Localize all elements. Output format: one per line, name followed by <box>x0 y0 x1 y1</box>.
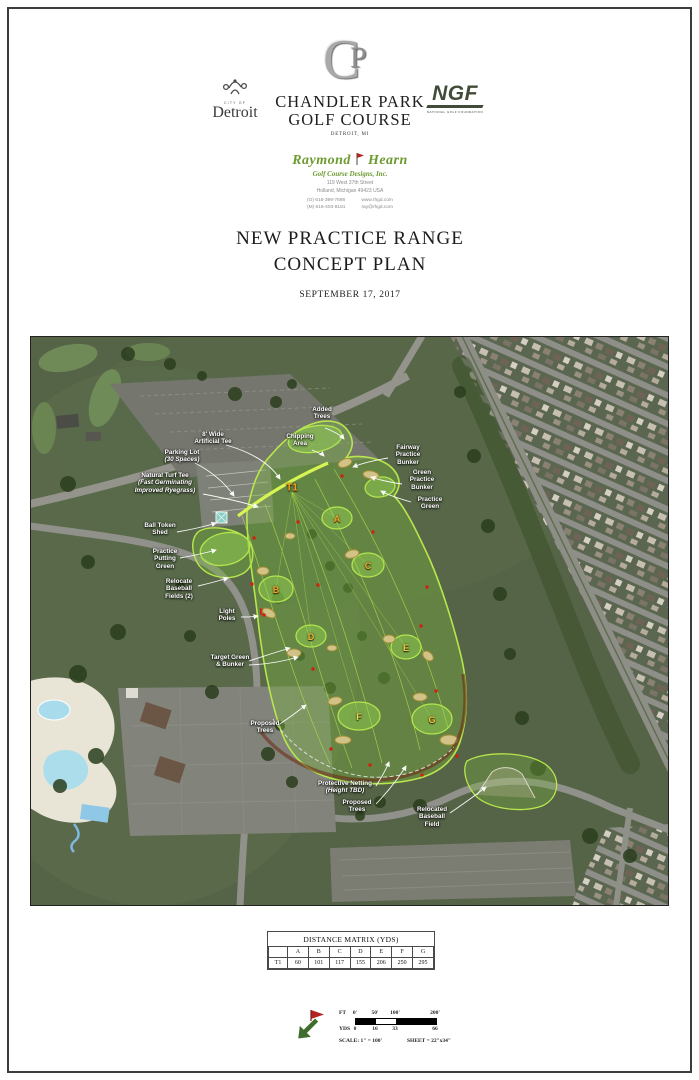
matrix-value-G: 295 <box>413 958 434 969</box>
map-marker-B: B <box>273 585 280 595</box>
map-label-light-poles: LightPoles <box>219 608 236 623</box>
designer-contacts: (O) 616-399-7686 (M) 616-403-8181 www.rh… <box>250 197 450 211</box>
map-label-relocate-baseball-fields: RelocateBaseballFields (2) <box>165 578 193 600</box>
designer-web: www.rhgd.com ray@rhgd.com <box>361 197 393 211</box>
yds-tick-1: 16 <box>372 1026 378 1032</box>
matrix-col-B: B <box>308 947 329 958</box>
map-marker-E: E <box>403 643 409 653</box>
matrix-col-A: A <box>288 947 309 958</box>
plan-title-line2: CONCEPT PLAN <box>150 252 550 278</box>
map-marker-F: F <box>356 712 362 722</box>
map-label-artificial-tee: 8' WideArtificial Tee <box>194 431 231 446</box>
spirit-of-detroit-icon <box>222 78 248 96</box>
map-marker-T1: T1 <box>286 483 298 494</box>
north-arrow-icon <box>291 1008 327 1046</box>
matrix-corner-cell <box>269 947 288 958</box>
map-marker-G: G <box>428 715 435 725</box>
map-label-ball-token-shed: Ball TokenShed <box>144 522 175 537</box>
golf-flag-icon <box>355 152 364 165</box>
designer-name-last: Hearn <box>368 153 408 168</box>
plan-sheet: CITY OF Detroit C P CHANDLER PARK GOLF C… <box>0 0 699 1080</box>
scale-text: SCALE: 1" = 100' <box>339 1038 382 1044</box>
ngf-underline <box>426 105 483 108</box>
designer-phone-mobile: (M) 616-403-8181 <box>307 204 345 211</box>
ft-tick-1: 50' <box>371 1010 378 1016</box>
plan-title-line1: NEW PRACTICE RANGE <box>150 226 550 252</box>
scale-bar <box>355 1018 437 1025</box>
ft-tick-3: 200' <box>430 1010 440 1016</box>
aerial-art <box>30 336 669 906</box>
matrix-value-C: 117 <box>329 958 350 969</box>
designer-address-line2: Holland, Michigan 49423 USA <box>250 188 450 195</box>
ngf-logo: NGF NATIONAL GOLF FOUNDATION <box>423 83 487 114</box>
matrix-value-A: 60 <box>288 958 309 969</box>
distance-matrix-table: ABCDEFG T160101117155206250295 <box>268 946 434 969</box>
map-label-chipping-area: ChippingArea <box>286 433 313 448</box>
designer-phone-office: (O) 616-399-7686 <box>307 197 345 204</box>
yds-tick-0: 0 <box>354 1026 357 1032</box>
map-label-proposed-trees-south: ProposedTrees <box>342 799 371 814</box>
map-label-proposed-trees-west: ProposedTrees <box>250 720 279 735</box>
matrix-col-F: F <box>392 947 413 958</box>
map-label-protective-netting: Protective Netting(Height TBD) <box>318 780 372 795</box>
matrix-col-D: D <box>350 947 371 958</box>
scale-yds-ticks: 0163366 <box>355 1026 435 1032</box>
scale-ft-label: FT <box>339 1010 346 1016</box>
designer-block: Raymond Hearn Golf Course Designs, Inc. … <box>250 152 450 211</box>
ft-tick-0: 0' <box>353 1010 357 1016</box>
map-label-relocated-baseball-field: RelocatedBaseballField <box>417 806 447 828</box>
course-title: CHANDLER PARK GOLF COURSE DETROIT, MI <box>250 93 450 138</box>
matrix-col-G: G <box>413 947 434 958</box>
yds-tick-3: 66 <box>432 1026 438 1032</box>
cp-monogram: C P <box>309 34 391 92</box>
designer-name-first: Raymond <box>292 153 351 168</box>
designer-website: www.rhgd.com <box>361 197 393 204</box>
yds-tick-2: 33 <box>392 1026 398 1032</box>
ngf-tagline: NATIONAL GOLF FOUNDATION <box>423 110 487 114</box>
designer-address-line1: 119 West 37th Street <box>250 180 450 187</box>
aerial-concept-map: AddedTreesChippingArea8' WideArtificial … <box>30 336 669 906</box>
scale-ft-ticks: 0'50'100'200' <box>355 1010 435 1016</box>
scale-yds-label: YDS <box>339 1026 350 1032</box>
light-pole-mark <box>260 608 262 615</box>
scale-block: FT 0'50'100'200' YDS 0163366 SCALE: 1" =… <box>283 1004 453 1052</box>
distance-matrix: DISTANCE MATRIX (YDS) ABCDEFG T160101117… <box>267 931 435 970</box>
map-marker-C: C <box>365 561 372 571</box>
map-label-fairway-practice-bunker: FairwayPracticeBunker <box>396 444 421 466</box>
ngf-acronym: NGF <box>423 83 487 104</box>
map-marker-D: D <box>308 632 315 642</box>
plan-title: NEW PRACTICE RANGE CONCEPT PLAN <box>150 226 550 277</box>
map-label-added-trees: AddedTrees <box>312 406 332 421</box>
sheet-text: SHEET = 22"x34" <box>407 1038 451 1044</box>
map-marker-A: A <box>334 514 341 524</box>
matrix-value-E: 206 <box>371 958 392 969</box>
ball-token-shed-symbol <box>216 512 227 523</box>
matrix-value-F: 250 <box>392 958 413 969</box>
matrix-value-D: 155 <box>350 958 371 969</box>
ft-tick-2: 100' <box>390 1010 400 1016</box>
map-label-parking-lot: Parking Lot(30 Spaces) <box>164 449 199 464</box>
matrix-row-label: T1 <box>269 958 288 969</box>
course-title-line2: GOLF COURSE <box>250 111 450 129</box>
plan-date: SEPTEMBER 17, 2017 <box>150 290 550 300</box>
monogram-p: P <box>350 41 367 75</box>
designer-email: ray@rhgd.com <box>361 204 393 211</box>
map-label-target-green-bunker: Target Green& Bunker <box>211 654 250 669</box>
designer-phones: (O) 616-399-7686 (M) 616-403-8181 <box>307 197 345 211</box>
map-label-practice-green: PracticeGreen <box>418 496 443 511</box>
course-subtitle: DETROIT, MI <box>250 132 450 138</box>
designer-firm: Golf Course Designs, Inc. <box>250 170 450 179</box>
distance-matrix-title: DISTANCE MATRIX (YDS) <box>268 932 434 946</box>
matrix-value-B: 101 <box>308 958 329 969</box>
matrix-col-C: C <box>329 947 350 958</box>
matrix-col-E: E <box>371 947 392 958</box>
course-title-line1: CHANDLER PARK <box>250 93 450 111</box>
matrix-row-T1: T160101117155206250295 <box>269 958 434 969</box>
map-label-practice-putting-green: PracticePuttingGreen <box>153 548 178 570</box>
map-label-natural-turf-tee: Natural Turf Tee(Fast GerminatingImprove… <box>135 472 196 494</box>
designer-name: Raymond Hearn <box>250 152 450 170</box>
designer-address: 119 West 37th Street Holland, Michigan 4… <box>250 180 450 195</box>
map-label-green-practice-bunker: GreenPracticeBunker <box>410 469 435 491</box>
